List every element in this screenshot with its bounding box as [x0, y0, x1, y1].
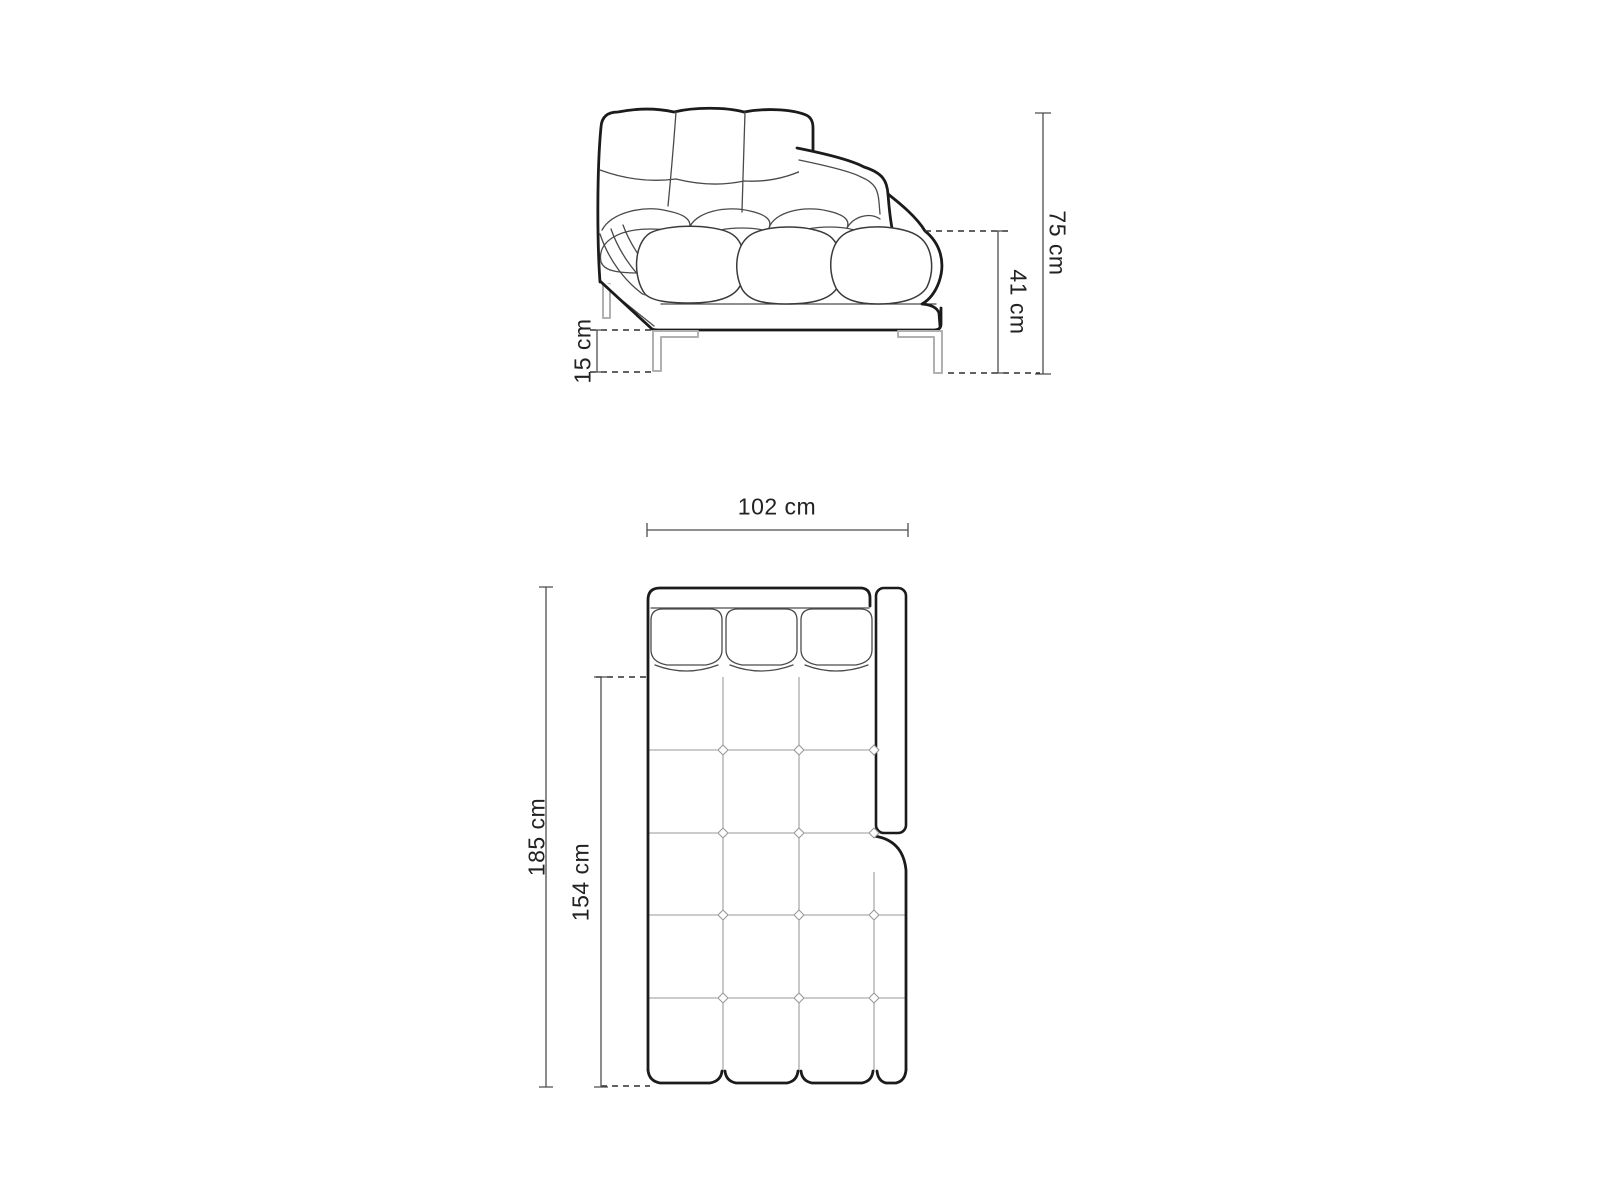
back-cushion-1: [651, 609, 722, 665]
dimension-label-leg-height: 15 cm: [570, 318, 597, 383]
side-view: [590, 108, 1051, 374]
dimension-label-seat-height: 41 cm: [1005, 269, 1032, 334]
furniture-dimension-diagram: 75 cm 41 cm 15 cm 102 cm 185 cm 154 cm: [0, 0, 1600, 1200]
side-front-left-leg: [653, 331, 698, 371]
seat-front-cushion-2: [737, 227, 842, 304]
dimension-seat-depth: [594, 677, 650, 1087]
plan-view: [539, 523, 908, 1087]
dimension-label-seat-depth: 154 cm: [568, 843, 595, 921]
dimension-label-total-depth: 185 cm: [524, 798, 551, 876]
back-cushion-3: [801, 609, 872, 665]
dimension-label-total-height: 75 cm: [1044, 210, 1071, 275]
plan-back-cushions: [651, 609, 872, 671]
dimension-label-width: 102 cm: [738, 494, 816, 521]
plan-armrest: [876, 588, 906, 833]
dimension-leg-height: [590, 330, 654, 372]
seat-front-cushion-3: [831, 227, 932, 304]
dimension-width: [647, 523, 908, 537]
side-front-right-leg: [898, 331, 942, 373]
back-cushion-2: [726, 609, 797, 665]
seat-front-cushion-1: [637, 226, 745, 303]
technical-drawing-canvas: [0, 0, 1600, 1200]
